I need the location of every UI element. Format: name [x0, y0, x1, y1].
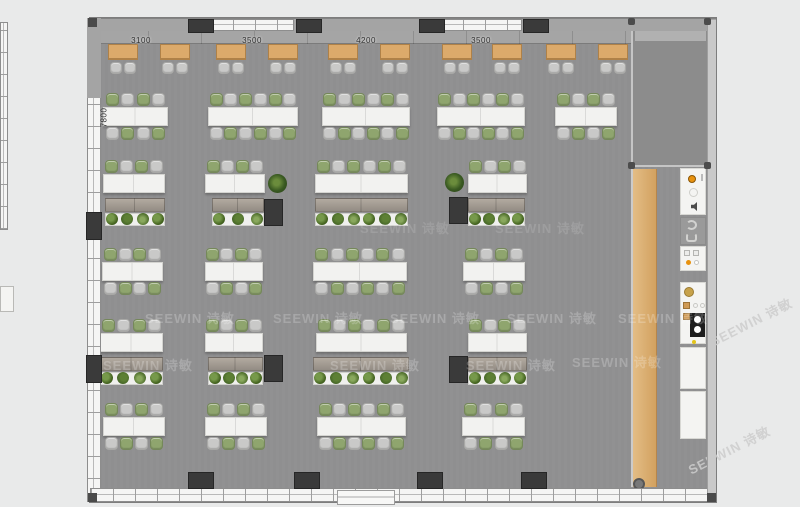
kitchen-detail-lounge [686, 220, 697, 230]
watermark: SEEWIN 诗敏 [330, 355, 420, 374]
task-chair [361, 282, 374, 295]
task-chair [602, 127, 615, 140]
kitchen-detail-coffee [684, 287, 694, 297]
watermark: SEEWIN 诗敏 [360, 218, 450, 237]
storage-cabinet [315, 198, 408, 212]
task-chair [207, 437, 220, 450]
column-pillar [419, 19, 445, 33]
task-chair [479, 437, 492, 450]
kitchen-detail-dispenser [693, 250, 699, 256]
booth-chair [176, 62, 188, 74]
task-chair [315, 282, 328, 295]
booth-chair [562, 62, 574, 74]
column-pillar [294, 472, 320, 489]
task-chair [511, 93, 524, 106]
task-chair [206, 248, 219, 261]
task-chair [120, 403, 133, 416]
task-chair [482, 127, 495, 140]
dimension-label-bay3: 4200 [346, 36, 386, 45]
storage-cabinet [105, 198, 165, 212]
planter-plant [348, 213, 360, 225]
meeting-room [631, 20, 710, 167]
booth-desk [546, 44, 576, 60]
storage-cabinet [212, 198, 264, 212]
task-chair [378, 160, 391, 173]
task-chair [467, 127, 480, 140]
floorplan-canvas: 3100 3500 4200 3500 7800 SEEWIN 诗敏SEEWIN… [0, 0, 800, 507]
workstation-table [468, 174, 527, 193]
task-chair [348, 437, 361, 450]
planter-plant [137, 213, 149, 225]
kitchen-detail-dispenser [684, 250, 690, 256]
task-chair [498, 160, 511, 173]
booth-desk [442, 44, 472, 60]
column-pillar [86, 355, 102, 383]
task-chair [495, 282, 508, 295]
task-chair [338, 93, 351, 106]
workstation-table [205, 174, 265, 193]
task-chair [220, 282, 233, 295]
workstation-table [463, 262, 525, 281]
task-chair [236, 160, 249, 173]
task-chair [317, 160, 330, 173]
column-pillar [449, 197, 468, 224]
booth-chair [600, 62, 612, 74]
task-chair [557, 93, 570, 106]
task-chair [323, 127, 336, 140]
task-chair [338, 127, 351, 140]
task-chair [393, 160, 406, 173]
workstation-table [205, 333, 263, 352]
planter-plant [223, 372, 235, 384]
dimension-label-bay2: 3500 [232, 36, 272, 45]
planter-plant [469, 213, 481, 225]
task-chair [438, 127, 451, 140]
column-pillar [264, 355, 283, 382]
booth-desk [492, 44, 522, 60]
task-chair [381, 127, 394, 140]
task-chair [269, 93, 282, 106]
task-chair [391, 437, 404, 450]
task-chair [120, 437, 133, 450]
kitchen-detail-dispenser [686, 260, 691, 265]
task-chair [392, 282, 405, 295]
workstation-table [103, 107, 168, 126]
task-chair [484, 160, 497, 173]
kitchen-dispenser [680, 246, 706, 271]
dimension-label-bay4: 3500 [461, 36, 501, 45]
task-chair [235, 319, 248, 332]
column-pillar [264, 199, 283, 226]
task-chair [465, 282, 478, 295]
task-chair [254, 127, 267, 140]
task-chair [495, 248, 508, 261]
window-band-top-right [440, 19, 522, 31]
task-chair [224, 93, 237, 106]
kitchen-detail-lounge [686, 233, 697, 242]
exterior-wall-right [707, 20, 716, 502]
task-chair [152, 93, 165, 106]
task-chair [510, 248, 523, 261]
kitchen-detail-coffee [694, 326, 701, 333]
task-chair [367, 93, 380, 106]
workstation-table [317, 417, 406, 436]
task-chair [557, 127, 570, 140]
task-chair [235, 282, 248, 295]
task-chair [119, 282, 132, 295]
task-chair [352, 93, 365, 106]
task-chair [206, 282, 219, 295]
task-chair [222, 437, 235, 450]
workstation-table [462, 417, 525, 436]
task-chair [210, 127, 223, 140]
booth-desk [216, 44, 246, 60]
task-chair [221, 160, 234, 173]
task-chair [479, 403, 492, 416]
task-chair [331, 248, 344, 261]
task-chair [510, 437, 523, 450]
task-chair [237, 403, 250, 416]
workstation-table [100, 333, 163, 352]
task-chair [377, 403, 390, 416]
watermark-diagonal: SEEWIN 诗敏 [707, 293, 796, 351]
window-wall-bottom [90, 488, 716, 502]
task-chair [464, 437, 477, 450]
kitchen-detail-sink [701, 174, 703, 181]
task-chair [323, 93, 336, 106]
wall-left-upper-segment [87, 18, 101, 98]
booth-chair [508, 62, 520, 74]
watermark: SEEWIN 诗敏 [618, 308, 708, 327]
task-chair [484, 319, 497, 332]
watermark: SEEWIN 诗敏 [507, 308, 597, 327]
planter-plant [152, 213, 164, 225]
task-chair [105, 437, 118, 450]
booth-chair [548, 62, 560, 74]
booth-chair [344, 62, 356, 74]
workstation-table [316, 333, 407, 352]
task-chair [361, 248, 374, 261]
planter-plant [332, 213, 344, 225]
kitchen-lounge [680, 217, 706, 245]
task-chair [464, 403, 477, 416]
column-pillar [521, 472, 547, 489]
potted-plant [268, 174, 287, 193]
booth-chair [284, 62, 296, 74]
watermark: SEEWIN 诗敏 [572, 352, 662, 371]
booth-chair [444, 62, 456, 74]
workstation-table [103, 174, 165, 193]
room-corner-joint [628, 18, 635, 25]
task-chair [283, 93, 296, 106]
task-chair [104, 248, 117, 261]
workstation-table [555, 107, 617, 126]
task-chair [315, 248, 328, 261]
task-chair [453, 127, 466, 140]
task-chair [362, 437, 375, 450]
task-chair [391, 403, 404, 416]
workstation-table [205, 262, 263, 281]
column-pillar [417, 472, 443, 489]
task-chair [480, 248, 493, 261]
task-chair [235, 248, 248, 261]
watermark: SEEWIN 诗敏 [273, 308, 363, 327]
task-chair [513, 160, 526, 173]
task-chair [453, 93, 466, 106]
wood-walkway [631, 169, 657, 487]
task-chair [333, 403, 346, 416]
watermark: SEEWIN 诗敏 [466, 355, 556, 374]
task-chair [362, 403, 375, 416]
watermark: SEEWIN 诗敏 [495, 218, 585, 237]
task-chair [511, 127, 524, 140]
planter-plant [106, 213, 118, 225]
task-chair [150, 160, 163, 173]
workstation-table [468, 333, 527, 352]
kitchen-sink [680, 168, 706, 215]
task-chair [224, 127, 237, 140]
kitchen-counter [680, 391, 706, 439]
booth-desk [160, 44, 190, 60]
window-band-top-left [210, 19, 294, 31]
task-chair [283, 127, 296, 140]
dimension-label-depth: 7800 [100, 98, 109, 138]
wall-corner [707, 493, 716, 502]
kitchen-detail-coffee [692, 340, 696, 344]
planter-plant [316, 213, 328, 225]
task-chair [239, 127, 252, 140]
booth-chair [382, 62, 394, 74]
workstation-table [315, 174, 408, 193]
task-chair [148, 248, 161, 261]
task-chair [135, 403, 148, 416]
booth-desk [598, 44, 628, 60]
task-chair [152, 127, 165, 140]
booth-chair [232, 62, 244, 74]
task-chair [572, 127, 585, 140]
task-chair [363, 160, 376, 173]
kitchen-counter [680, 347, 706, 389]
task-chair [331, 282, 344, 295]
task-chair [376, 282, 389, 295]
room-corner-joint [704, 162, 711, 169]
planter-plant [232, 213, 244, 225]
task-chair [135, 160, 148, 173]
task-chair [332, 160, 345, 173]
task-chair [120, 160, 133, 173]
booth-chair [494, 62, 506, 74]
task-chair [210, 93, 223, 106]
planter-plant [250, 372, 262, 384]
task-chair [119, 248, 132, 261]
task-chair [222, 403, 235, 416]
workstation-table [322, 107, 410, 126]
room-corner-joint [704, 18, 711, 25]
wall-corner [88, 493, 97, 502]
task-chair [133, 248, 146, 261]
task-chair [496, 93, 509, 106]
task-chair [319, 403, 332, 416]
task-chair [207, 403, 220, 416]
watermark: SEEWIN 诗敏 [390, 308, 480, 327]
task-chair [105, 160, 118, 173]
task-chair [249, 282, 262, 295]
task-chair [346, 282, 359, 295]
booth-desk [380, 44, 410, 60]
task-chair [496, 127, 509, 140]
booth-chair [614, 62, 626, 74]
task-chair [237, 437, 250, 450]
task-chair [348, 403, 361, 416]
task-chair [319, 437, 332, 450]
booth-chair [396, 62, 408, 74]
offcanvas-wall-box [0, 286, 14, 312]
task-chair [254, 93, 267, 106]
task-chair [480, 282, 493, 295]
task-chair [377, 437, 390, 450]
task-chair [252, 437, 265, 450]
task-chair [121, 93, 134, 106]
task-chair [467, 93, 480, 106]
room-corner-joint [628, 162, 635, 169]
kitchen-detail-dispenser [694, 260, 699, 265]
exterior-wall-top [90, 18, 716, 31]
booth-chair [270, 62, 282, 74]
task-chair [495, 403, 508, 416]
booth-chair [218, 62, 230, 74]
task-chair [377, 319, 390, 332]
task-chair [207, 160, 220, 173]
task-chair [346, 248, 359, 261]
task-chair [250, 160, 263, 173]
task-chair [252, 403, 265, 416]
booth-chair [458, 62, 470, 74]
planter-plant [213, 213, 225, 225]
kitchen-detail-sink [689, 188, 698, 197]
column-pillar [188, 19, 214, 33]
workstation-table [313, 262, 407, 281]
task-chair [117, 319, 130, 332]
task-chair [376, 248, 389, 261]
task-chair [469, 160, 482, 173]
booth-chair [110, 62, 122, 74]
workstation-table [102, 262, 163, 281]
storage-cabinet [208, 357, 263, 371]
task-chair [347, 160, 360, 173]
kitchen-detail-sink [691, 202, 697, 211]
workstation-table [208, 107, 298, 126]
dimension-label-bay1: 3100 [121, 36, 161, 45]
planter-plant [314, 372, 326, 384]
task-chair [392, 248, 405, 261]
task-chair [510, 282, 523, 295]
kitchen-detail-sink [688, 175, 696, 183]
task-chair [495, 437, 508, 450]
task-chair [105, 403, 118, 416]
task-chair [150, 437, 163, 450]
booth-chair [162, 62, 174, 74]
workstation-table [437, 107, 525, 126]
booth-desk [268, 44, 298, 60]
task-chair [121, 127, 134, 140]
task-chair [572, 93, 585, 106]
task-chair [381, 93, 394, 106]
watermark: SEEWIN 诗敏 [145, 308, 235, 327]
task-chair [465, 248, 478, 261]
workstation-table [205, 417, 267, 436]
column-pillar [188, 472, 214, 489]
booth-desk [108, 44, 138, 60]
workstation-table [103, 417, 165, 436]
wall-corner [88, 18, 97, 27]
booth-desk [328, 44, 358, 60]
task-chair [137, 93, 150, 106]
column-pillar [523, 19, 549, 33]
task-chair [249, 319, 262, 332]
task-chair [249, 248, 262, 261]
task-chair [367, 127, 380, 140]
task-chair [602, 93, 615, 106]
task-chair [269, 127, 282, 140]
task-chair [333, 437, 346, 450]
potted-plant [445, 173, 464, 192]
task-chair [587, 127, 600, 140]
task-chair [438, 93, 451, 106]
task-chair [137, 127, 150, 140]
task-chair [239, 93, 252, 106]
task-chair [133, 319, 146, 332]
task-chair [396, 93, 409, 106]
task-chair [102, 319, 115, 332]
task-chair [148, 282, 161, 295]
task-chair [220, 248, 233, 261]
column-pillar [86, 212, 102, 240]
task-chair [150, 403, 163, 416]
task-chair [482, 93, 495, 106]
booth-chair [330, 62, 342, 74]
task-chair [362, 319, 375, 332]
watermark: SEEWIN 诗敏 [103, 355, 193, 374]
task-chair [104, 282, 117, 295]
storage-cabinet [468, 198, 525, 212]
entry-door [337, 490, 395, 505]
column-pillar [296, 19, 322, 33]
planter-plant [209, 372, 221, 384]
booth-chair [124, 62, 136, 74]
task-chair [510, 403, 523, 416]
task-chair [396, 127, 409, 140]
task-chair [352, 127, 365, 140]
task-chair [133, 282, 146, 295]
task-chair [587, 93, 600, 106]
planter-plant [251, 213, 263, 225]
task-chair [135, 437, 148, 450]
